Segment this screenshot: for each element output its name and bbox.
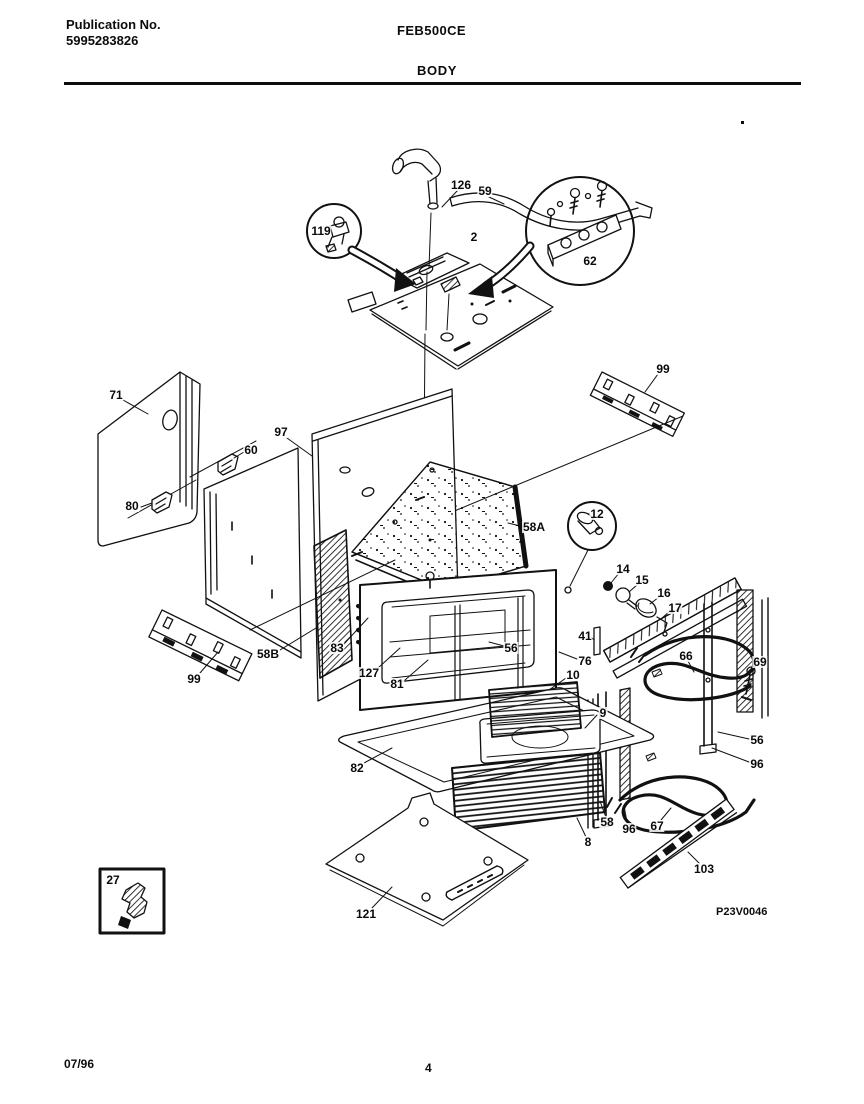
callout-59: 59: [477, 185, 492, 197]
callout-8: 8: [584, 836, 593, 848]
callout-58B: 58B: [256, 648, 280, 660]
callout-16: 16: [656, 587, 671, 599]
callout-56: 56: [503, 642, 518, 654]
callout-62: 62: [582, 255, 597, 267]
callout-60: 60: [243, 444, 258, 456]
callout-80: 80: [124, 500, 139, 512]
callout-97: 97: [273, 426, 288, 438]
callout-76: 76: [577, 655, 592, 667]
callout-71: 71: [108, 389, 123, 401]
callout-96: 96: [621, 823, 636, 835]
callout-17: 17: [667, 602, 682, 614]
callout-9: 9: [599, 707, 608, 719]
callout-58A: 58A: [522, 521, 546, 533]
vent-tube: [391, 149, 458, 209]
callout-99: 99: [655, 363, 670, 375]
bake-element-66: [631, 637, 754, 700]
callout-14: 14: [615, 563, 630, 575]
clamp-detail-circle: [307, 204, 416, 292]
callout-41: 41: [577, 630, 592, 642]
callout-99: 99: [186, 673, 201, 685]
callout-103: 103: [693, 863, 715, 875]
callout-15: 15: [634, 574, 649, 586]
callout-119: 119: [310, 225, 331, 237]
callout-27: 27: [105, 874, 120, 886]
callout-66: 66: [678, 650, 693, 662]
callout-81: 81: [389, 678, 404, 690]
callout-127: 127: [358, 667, 380, 679]
vent-duct: [450, 193, 652, 230]
inner-side-panel: [204, 448, 301, 658]
diagram-canvas: [0, 0, 864, 1104]
bottom-trim-103: [620, 799, 736, 891]
callout-58: 58: [599, 816, 614, 828]
callout-56: 56: [749, 734, 764, 746]
callout-67: 67: [649, 820, 664, 832]
callout-126: 126: [450, 179, 472, 191]
callout-12: 12: [589, 508, 604, 520]
oven-rack-8: [452, 753, 605, 837]
callout-69: 69: [752, 656, 767, 668]
callout-83: 83: [329, 642, 344, 654]
service-manual-page: Publication No. 5995283826 FEB500CE BODY…: [0, 0, 864, 1104]
callout-10: 10: [565, 669, 580, 681]
callout-121: 121: [355, 908, 377, 920]
callout-2: 2: [470, 231, 479, 243]
callout-96: 96: [749, 758, 764, 770]
callout-82: 82: [349, 762, 364, 774]
terminal-block-detail-circle: [468, 177, 634, 298]
